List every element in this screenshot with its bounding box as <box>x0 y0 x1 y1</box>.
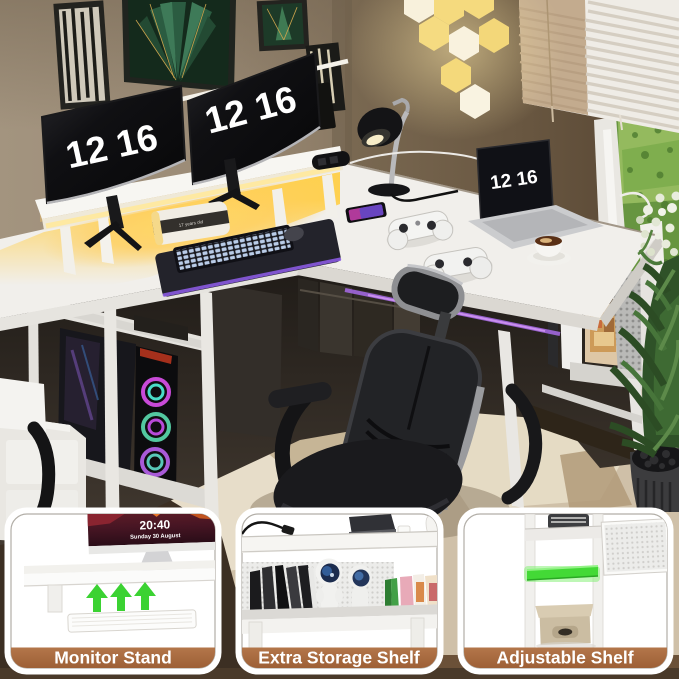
svg-text:Monitor Stand: Monitor Stand <box>54 648 172 668</box>
svg-text:20:40: 20:40 <box>139 517 170 532</box>
svg-text:Adjustable Shelf: Adjustable Shelf <box>496 648 633 668</box>
svg-text:Extra Storage Shelf: Extra Storage Shelf <box>258 648 420 668</box>
